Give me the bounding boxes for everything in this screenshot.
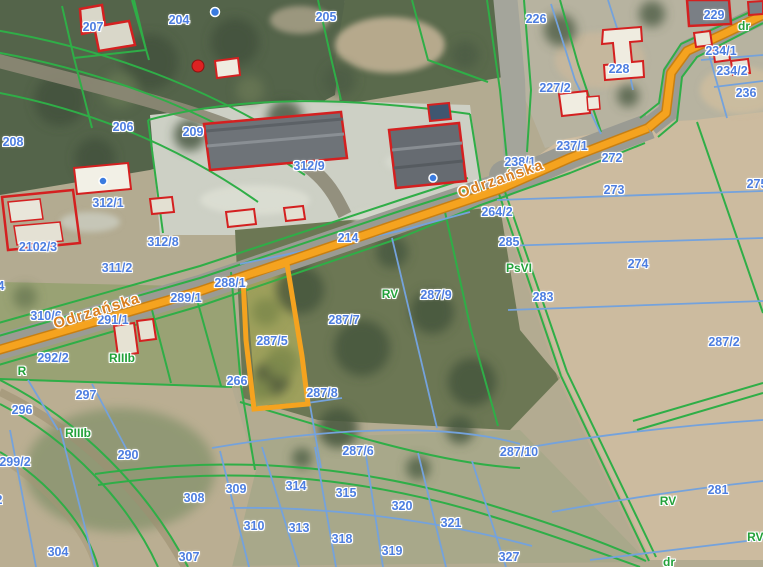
landuse-label: R [18, 365, 27, 377]
parcel-label: 299/2 [0, 456, 31, 469]
landuse-label: RIIIb [65, 427, 91, 439]
street-name-label: Odrzańska [456, 157, 546, 201]
parcel-label: 209 [183, 126, 204, 139]
parcel-label: 314 [286, 480, 307, 493]
parcel-label: 307 [179, 551, 200, 564]
parcel-label: 321 [441, 517, 462, 530]
parcel-label: 288/1 [214, 277, 245, 290]
parcel-label: 227/2 [539, 82, 570, 95]
parcel-label: 2102/3 [19, 241, 57, 254]
parcel-label: 319 [382, 545, 403, 558]
landuse-label: dr [738, 20, 750, 32]
parcel-label: 228 [609, 63, 630, 76]
parcel-label: 272 [602, 152, 623, 165]
parcel-label: 283 [533, 291, 554, 304]
parcel-label: 313 [289, 522, 310, 535]
parcel-label: 312/9 [293, 160, 324, 173]
parcel-label: 236 [736, 87, 757, 100]
parcel-label: 285 [499, 236, 520, 249]
parcel-label: 287/10 [500, 446, 538, 459]
parcel-label: 204 [169, 14, 190, 27]
parcel-label: 208 [3, 136, 24, 149]
parcel-label: 264/2 [481, 206, 512, 219]
parcel-label: 287/2 [708, 336, 739, 349]
parcel-label: 309 [226, 483, 247, 496]
parcel-label: 296 [12, 404, 33, 417]
parcel-label: 318 [332, 533, 353, 546]
landuse-label: PsVI [506, 262, 532, 274]
parcel-label: 304 [48, 546, 69, 559]
parcel-label: 287/9 [420, 289, 451, 302]
parcel-label: 312/8 [147, 236, 178, 249]
parcel-label: 207 [83, 21, 104, 34]
parcel-label: 327 [499, 551, 520, 564]
parcel-label: 266 [227, 375, 248, 388]
parcel-label: 294 [0, 280, 4, 293]
parcel-label: 302 [0, 494, 2, 507]
parcel-label: 274 [628, 258, 649, 271]
parcel-label: 308 [184, 492, 205, 505]
landuse-label: RV [660, 495, 676, 507]
parcel-label: 310 [244, 520, 265, 533]
parcel-label: 289/1 [170, 292, 201, 305]
parcel-label: 292/2 [37, 352, 68, 365]
parcel-label: 320 [392, 500, 413, 513]
parcel-label: 312/1 [92, 197, 123, 210]
map-labels-layer: 207204205226229234/1234/2236228227/22082… [0, 0, 763, 567]
parcel-label: 287/7 [328, 314, 359, 327]
parcel-label: 311/2 [102, 262, 133, 275]
landuse-label: RVI [747, 531, 763, 543]
landuse-label: dr [663, 556, 675, 567]
parcel-label: 287/5 [256, 335, 287, 348]
landuse-label: RV [382, 288, 398, 300]
parcel-label: 287/6 [342, 445, 373, 458]
parcel-label: 234/2 [716, 65, 747, 78]
parcel-label: 206 [113, 121, 134, 134]
parcel-label: 205 [316, 11, 337, 24]
parcel-label: 287/8 [306, 387, 337, 400]
parcel-label: 297 [76, 389, 97, 402]
parcel-label: 273 [604, 184, 625, 197]
parcel-label: 234/1 [705, 45, 736, 58]
parcel-label: 315 [336, 487, 357, 500]
map-viewport[interactable]: 207204205226229234/1234/2236228227/22082… [0, 0, 763, 567]
parcel-label: 281 [708, 484, 729, 497]
parcel-label: 275 [747, 178, 763, 191]
landuse-label: RIIIb [109, 352, 135, 364]
parcel-label: 290 [118, 449, 139, 462]
parcel-label: 237/1 [556, 140, 587, 153]
parcel-label: 226 [526, 13, 547, 26]
parcel-label: 214 [338, 232, 359, 245]
parcel-label: 229 [704, 9, 725, 22]
